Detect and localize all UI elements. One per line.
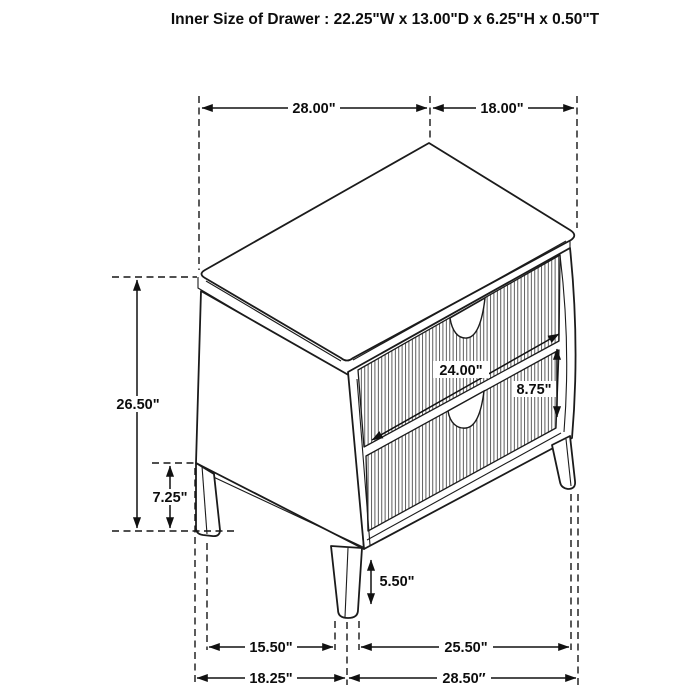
leg-front bbox=[331, 546, 362, 618]
label-top-width: 28.00" bbox=[292, 101, 335, 117]
label-overall-height: 26.50" bbox=[116, 397, 159, 413]
dim-floor-to-case-bottom: 7.25" bbox=[148, 466, 192, 528]
diagram-title: Inner Size of Drawer : 22.25"W x 13.00"D… bbox=[171, 11, 600, 28]
dim-leg-span-front: 25.50" bbox=[361, 639, 569, 656]
dim-top-width: 28.00" bbox=[202, 100, 427, 117]
label-base-depth: 18.25" bbox=[249, 671, 292, 687]
dimension-diagram: Inner Size of Drawer : 22.25"W x 13.00"D… bbox=[0, 0, 700, 700]
dim-leg-span-side: 15.50" bbox=[209, 639, 333, 656]
dim-top-depth: 18.00" bbox=[433, 100, 574, 117]
label-base-width: 28.50″ bbox=[442, 671, 485, 687]
label-drawer-front-height: 8.75" bbox=[516, 382, 551, 398]
label-leg-height: 5.50" bbox=[379, 574, 414, 590]
label-leg-span-side: 15.50" bbox=[249, 640, 292, 656]
nightstand-drawing bbox=[196, 143, 576, 618]
label-drawer-front-width: 24.00" bbox=[439, 363, 482, 379]
dimension-diagram-page: Inner Size of Drawer : 22.25"W x 13.00"D… bbox=[0, 0, 700, 700]
dim-base-width: 28.50″ bbox=[349, 670, 576, 687]
label-top-depth: 18.00" bbox=[480, 101, 523, 117]
label-floor-to-case-bottom: 7.25" bbox=[152, 490, 187, 506]
dim-base-depth: 18.25" bbox=[197, 670, 345, 687]
dim-leg-height: 5.50" bbox=[371, 560, 418, 604]
leg-right bbox=[552, 436, 575, 489]
label-leg-span-front: 25.50" bbox=[444, 640, 487, 656]
